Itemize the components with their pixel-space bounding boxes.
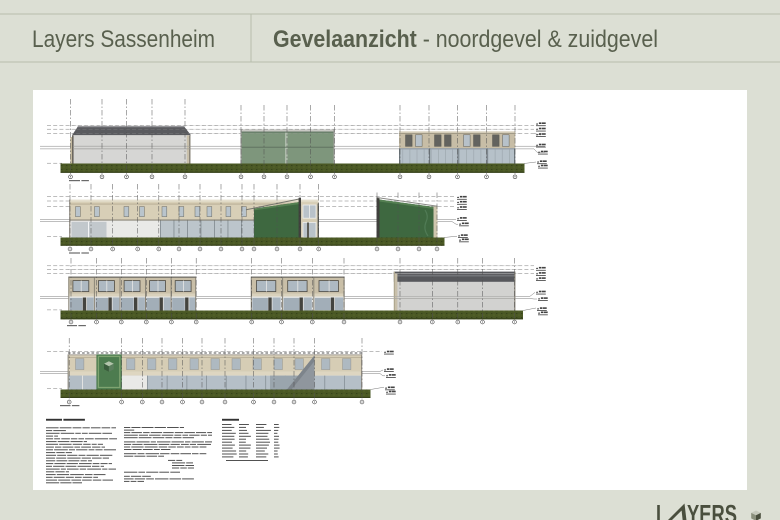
svg-text:L: L xyxy=(656,499,667,520)
svg-text:Layers Sassenheim: Layers Sassenheim xyxy=(32,26,215,53)
svg-text:Gevelaanzicht - noordgevel & z: Gevelaanzicht - noordgevel & zuidgevel xyxy=(273,26,658,53)
svg-text:YERS: YERS xyxy=(687,499,737,520)
